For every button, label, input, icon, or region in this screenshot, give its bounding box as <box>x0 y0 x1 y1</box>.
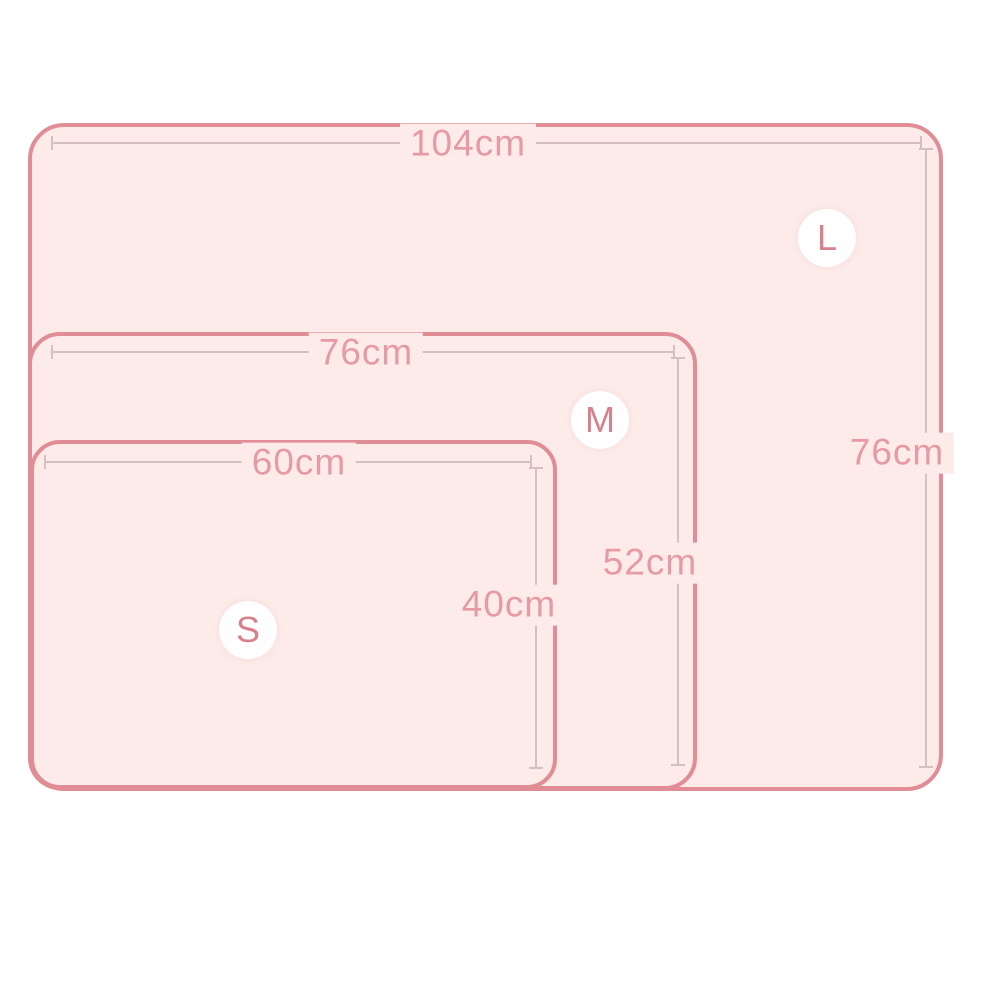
medium-width-start-tick <box>51 345 53 359</box>
small-height-label: 40cm <box>452 585 566 626</box>
size-badge-medium-letter: M <box>585 399 615 441</box>
medium-width-label: 76cm <box>309 333 423 374</box>
small-height-end-tick <box>529 767 543 769</box>
size-badge-large-letter: L <box>817 217 837 259</box>
size-badge-small-letter: S <box>236 609 260 651</box>
small-width-label: 60cm <box>242 443 356 484</box>
medium-height-label: 52cm <box>593 543 707 584</box>
large-width-label: 104cm <box>400 124 536 165</box>
medium-height-end-tick <box>671 764 685 766</box>
size-badge-medium: M <box>571 391 629 449</box>
medium-height-start-tick <box>671 357 685 359</box>
size-badge-large: L <box>798 209 856 267</box>
small-width-start-tick <box>44 455 46 469</box>
small-height-start-tick <box>529 467 543 469</box>
large-height-start-tick <box>919 148 933 150</box>
size-badge-small: S <box>219 601 277 659</box>
large-height-end-tick <box>919 766 933 768</box>
large-width-start-tick <box>51 136 53 150</box>
large-height-label: 76cm <box>840 433 954 474</box>
size-diagram: 104cm 76cm 76cm 52cm 60cm 40cm L M S <box>0 0 1000 1000</box>
